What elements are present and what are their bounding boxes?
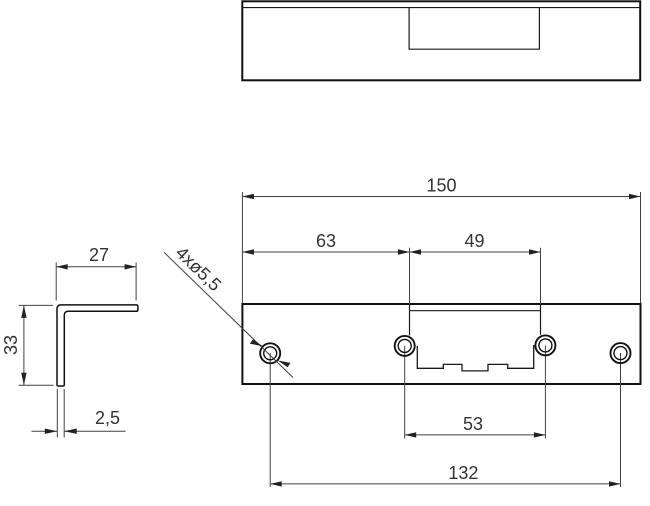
svg-text:49: 49 <box>464 231 484 251</box>
svg-text:27: 27 <box>89 245 109 265</box>
svg-text:150: 150 <box>426 176 456 196</box>
svg-text:33: 33 <box>1 335 21 355</box>
svg-text:63: 63 <box>316 231 336 251</box>
svg-text:132: 132 <box>448 463 478 483</box>
svg-text:53: 53 <box>463 414 483 434</box>
svg-text:2,5: 2,5 <box>95 408 120 428</box>
